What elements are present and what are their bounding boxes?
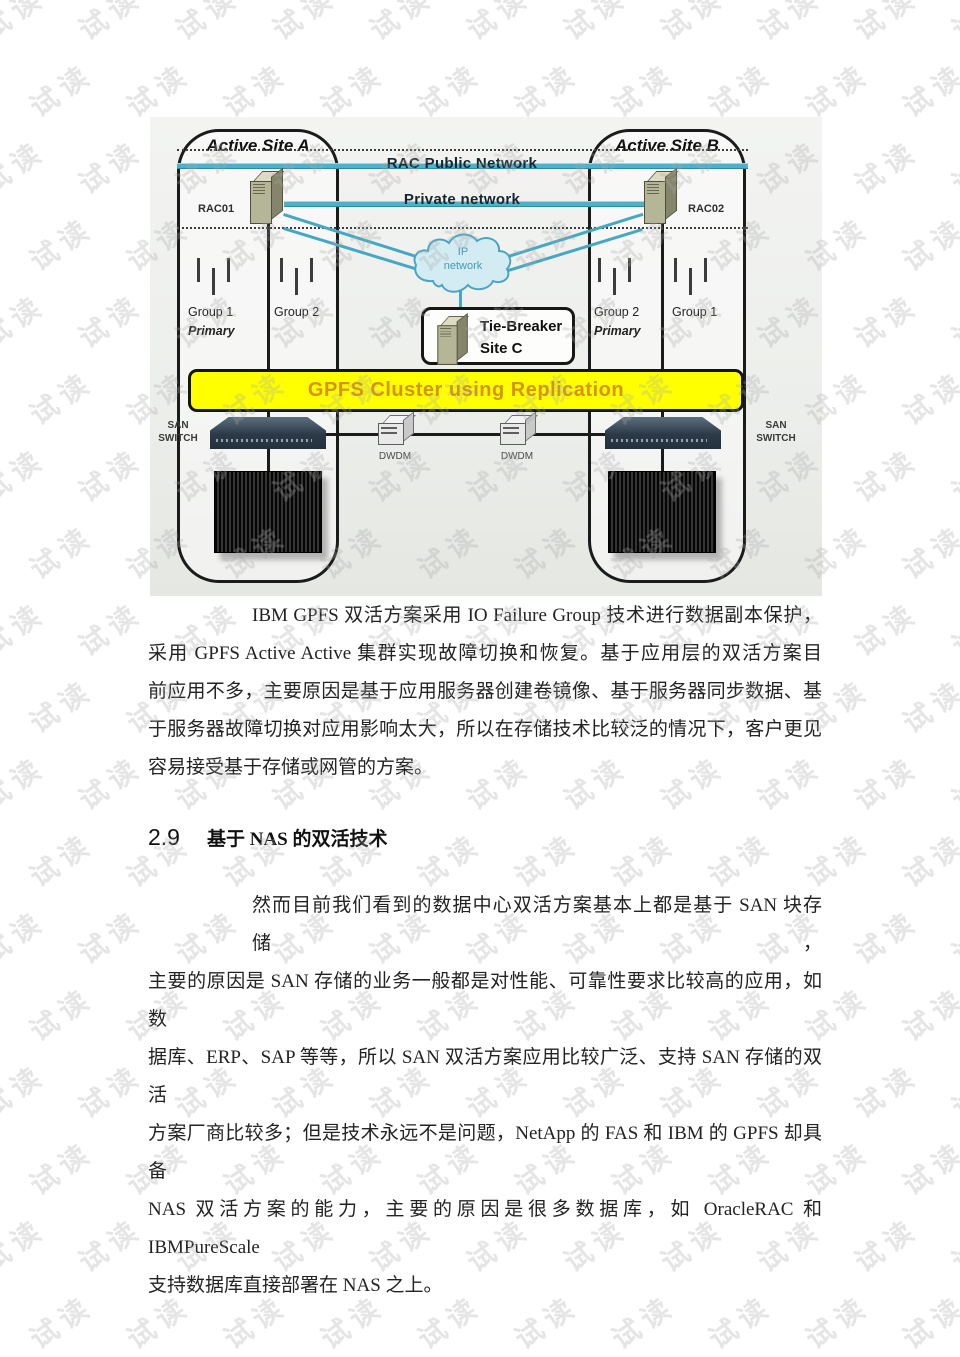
watermark-text: 试读 [846,1208,926,1281]
watermark-text: 试读 [0,746,53,819]
site-b-disk-array-icon [608,471,716,553]
paragraph-line: 支持数据库直接部署在 NAS 之上。 [148,1267,822,1305]
site-a-group-2: Group 2 [274,303,350,322]
paragraph-line: 然而目前我们看到的数据中心双活方案基本上都是基于 SAN 块存储， [148,887,822,963]
san-switch-icon [210,417,326,449]
server-side-face [271,168,283,220]
private-network-label: Private network [332,191,592,208]
watermark-text: 试读 [894,823,960,896]
watermark-text: 试读 [70,130,150,203]
watermark-text: 试读 [409,53,489,126]
group-name: Group 2 [594,303,670,322]
server-side-face [457,313,468,361]
watermark-text: 试读 [0,900,53,973]
watermark-text: 试读 [943,746,960,819]
watermark-text: 试读 [361,0,441,48]
server-vents [440,328,451,337]
paragraph-line: 前应用不多，主要原因是基于应用服务器创建卷镜像、基于服务器同步数据、基 [148,673,822,711]
rac02-server-icon [644,171,678,223]
watermark-text: 试读 [894,207,960,280]
watermark-text: 试读 [652,0,732,48]
group-name: Group 2 [274,303,350,322]
dwdm-icon [500,415,538,449]
site-a-group-1: Group 1 Primary [188,303,264,342]
dwdm-left-label: DWDM [372,451,418,462]
dwdm-slots [381,427,397,436]
watermark-text: 试读 [0,284,53,357]
watermark-text: 试读 [700,823,780,896]
watermark-text: 试读 [0,1054,53,1127]
watermark-text: 试读 [943,1208,960,1281]
rac01-server-icon [250,171,284,223]
watermark-text: 试读 [70,1208,150,1281]
watermark-text: 试读 [0,438,53,511]
watermark-text: 试读 [70,746,150,819]
paragraph-nas-intro: 然而目前我们看到的数据中心双活方案基本上都是基于 SAN 块存储，主要的原因是 … [148,887,822,1305]
watermark-text: 试读 [167,0,247,48]
san-interconnect-line [268,433,664,436]
watermark-text: 试读 [943,900,960,973]
watermark-text: 试读 [846,1054,926,1127]
watermark-text: 试读 [215,53,295,126]
rac01-label: RAC01 [198,203,234,215]
san-switch-left-label: SAN SWITCH [150,419,206,445]
paragraph-line: 主要的原因是 SAN 存储的业务一般都是对性能、可靠性要求比较高的应用，如数 [148,963,822,1039]
tie-breaker-server-icon [437,316,468,364]
watermark-text: 试读 [894,515,960,588]
watermark-text: 试读 [0,592,53,665]
watermark-text: 试读 [0,1208,53,1281]
watermark-text: 试读 [21,207,101,280]
watermark-text: 试读 [21,1285,101,1357]
watermark-text: 试读 [70,284,150,357]
document-page: Active Site A Active Site B RAC Public N… [0,0,960,1357]
watermark-text: 试读 [21,53,101,126]
watermark-text: 试读 [70,438,150,511]
watermark-text: 试读 [264,0,344,48]
site-a-disk-ticks [197,258,242,285]
watermark-text: 试读 [846,438,926,511]
paragraph-line: IBM GPFS 双活方案采用 IO Failure Group 技术进行数据副… [148,597,822,635]
watermark-text: 试读 [846,130,926,203]
watermark-text: 试读 [70,0,150,48]
san-switch-icon [605,417,721,449]
watermark-text: 试读 [846,746,926,819]
watermark-text: 试读 [506,823,586,896]
watermark-text: 试读 [21,669,101,742]
site-b-disk-ticks [674,258,719,285]
paragraph-line: 采用 GPFS Active Active 集群实现故障切换和恢复。基于应用层的… [148,635,822,673]
watermark-text: 试读 [603,823,683,896]
dwdm-right-label: DWDM [494,451,540,462]
site-a-disk-ticks [280,258,325,285]
watermark-text: 试读 [458,0,538,48]
paragraph-gpfs-summary: IBM GPFS 双活方案采用 IO Failure Group 技术进行数据副… [148,597,822,787]
watermark-text: 试读 [555,0,635,48]
watermark-text: 试读 [943,284,960,357]
group-tag: Primary [188,322,264,341]
tie-breaker-label: Tie-Breaker Site C [480,316,562,360]
server-vents [253,184,265,194]
watermark-text: 试读 [70,1054,150,1127]
paragraph-line: NAS 双活方案的能力，主要的原因是很多数据库，如 OracleRAC 和 IB… [148,1191,822,1267]
watermark-text: 试读 [700,53,780,126]
watermark-text: 试读 [0,0,53,48]
paragraph-line: 据库、ERP、SAP 等等，所以 SAN 双活方案应用比较广泛、支持 SAN 存… [148,1039,822,1115]
dwdm-icon [378,415,416,449]
site-a-disk-array-icon [214,471,322,553]
watermark-text: 试读 [21,1131,101,1204]
server-vents [647,184,659,194]
tie-breaker-box: Tie-Breaker Site C [421,307,575,365]
site-b-group-1: Group 1 [672,303,748,322]
section-title: 基于 NAS 的双活技术 [207,824,388,851]
watermark-text: 试读 [21,823,101,896]
watermark-text: 试读 [846,592,926,665]
site-b-disk-ticks [598,258,643,285]
dwdm-slots [503,427,519,436]
watermark-text: 试读 [409,823,489,896]
watermark-text: 试读 [21,977,101,1050]
gpfs-cluster-banner: GPFS Cluster using Replication [188,369,744,412]
watermark-text: 试读 [118,53,198,126]
watermark-text: 试读 [21,361,101,434]
server-side-face [665,168,677,220]
section-heading: 2.9 基于 NAS 的双活技术 [148,824,388,851]
site-b-group-2: Group 2 Primary [594,303,670,342]
watermark-text: 试读 [846,284,926,357]
paragraph-line: 容易接受基于存储或网管的方案。 [148,749,822,787]
san-switch-right-label: SAN SWITCH [748,419,804,445]
watermark-text: 试读 [312,53,392,126]
rac02-label: RAC02 [688,203,724,215]
watermark-text: 试读 [894,361,960,434]
group-tag: Primary [594,322,670,341]
watermark-text: 试读 [70,900,150,973]
watermark-text: 试读 [603,53,683,126]
paragraph-line: 于服务器故障切换对应用影响太大，所以在存储技术比较泛的情况下，客户更见 [148,711,822,749]
watermark-text: 试读 [943,438,960,511]
watermark-text: 试读 [894,53,960,126]
section-number: 2.9 [148,824,180,851]
watermark-text: 试读 [21,515,101,588]
group-name: Group 1 [672,303,748,322]
watermark-text: 试读 [894,1131,960,1204]
watermark-text: 试读 [943,592,960,665]
watermark-text: 试读 [894,977,960,1050]
watermark-text: 试读 [749,0,829,48]
network-architecture-diagram: Active Site A Active Site B RAC Public N… [150,117,822,596]
rac-public-network-label: RAC Public Network [332,155,592,172]
watermark-text: 试读 [0,130,53,203]
watermark-text: 试读 [943,130,960,203]
ip-network-label: IP network [408,245,518,274]
watermark-text: 试读 [797,53,877,126]
watermark-text: 试读 [943,0,960,48]
ip-network-cloud-icon: IP network [408,229,518,295]
watermark-text: 试读 [70,592,150,665]
watermark-text: 试读 [506,53,586,126]
watermark-text: 试读 [943,1054,960,1127]
watermark-text: 试读 [846,900,926,973]
watermark-text: 试读 [797,823,877,896]
paragraph-line: 方案厂商比较多；但是技术永远不是问题，NetApp 的 FAS 和 IBM 的 … [148,1115,822,1191]
watermark-text: 试读 [846,0,926,48]
group-name: Group 1 [188,303,264,322]
watermark-text: 试读 [894,1285,960,1357]
watermark-text: 试读 [894,669,960,742]
